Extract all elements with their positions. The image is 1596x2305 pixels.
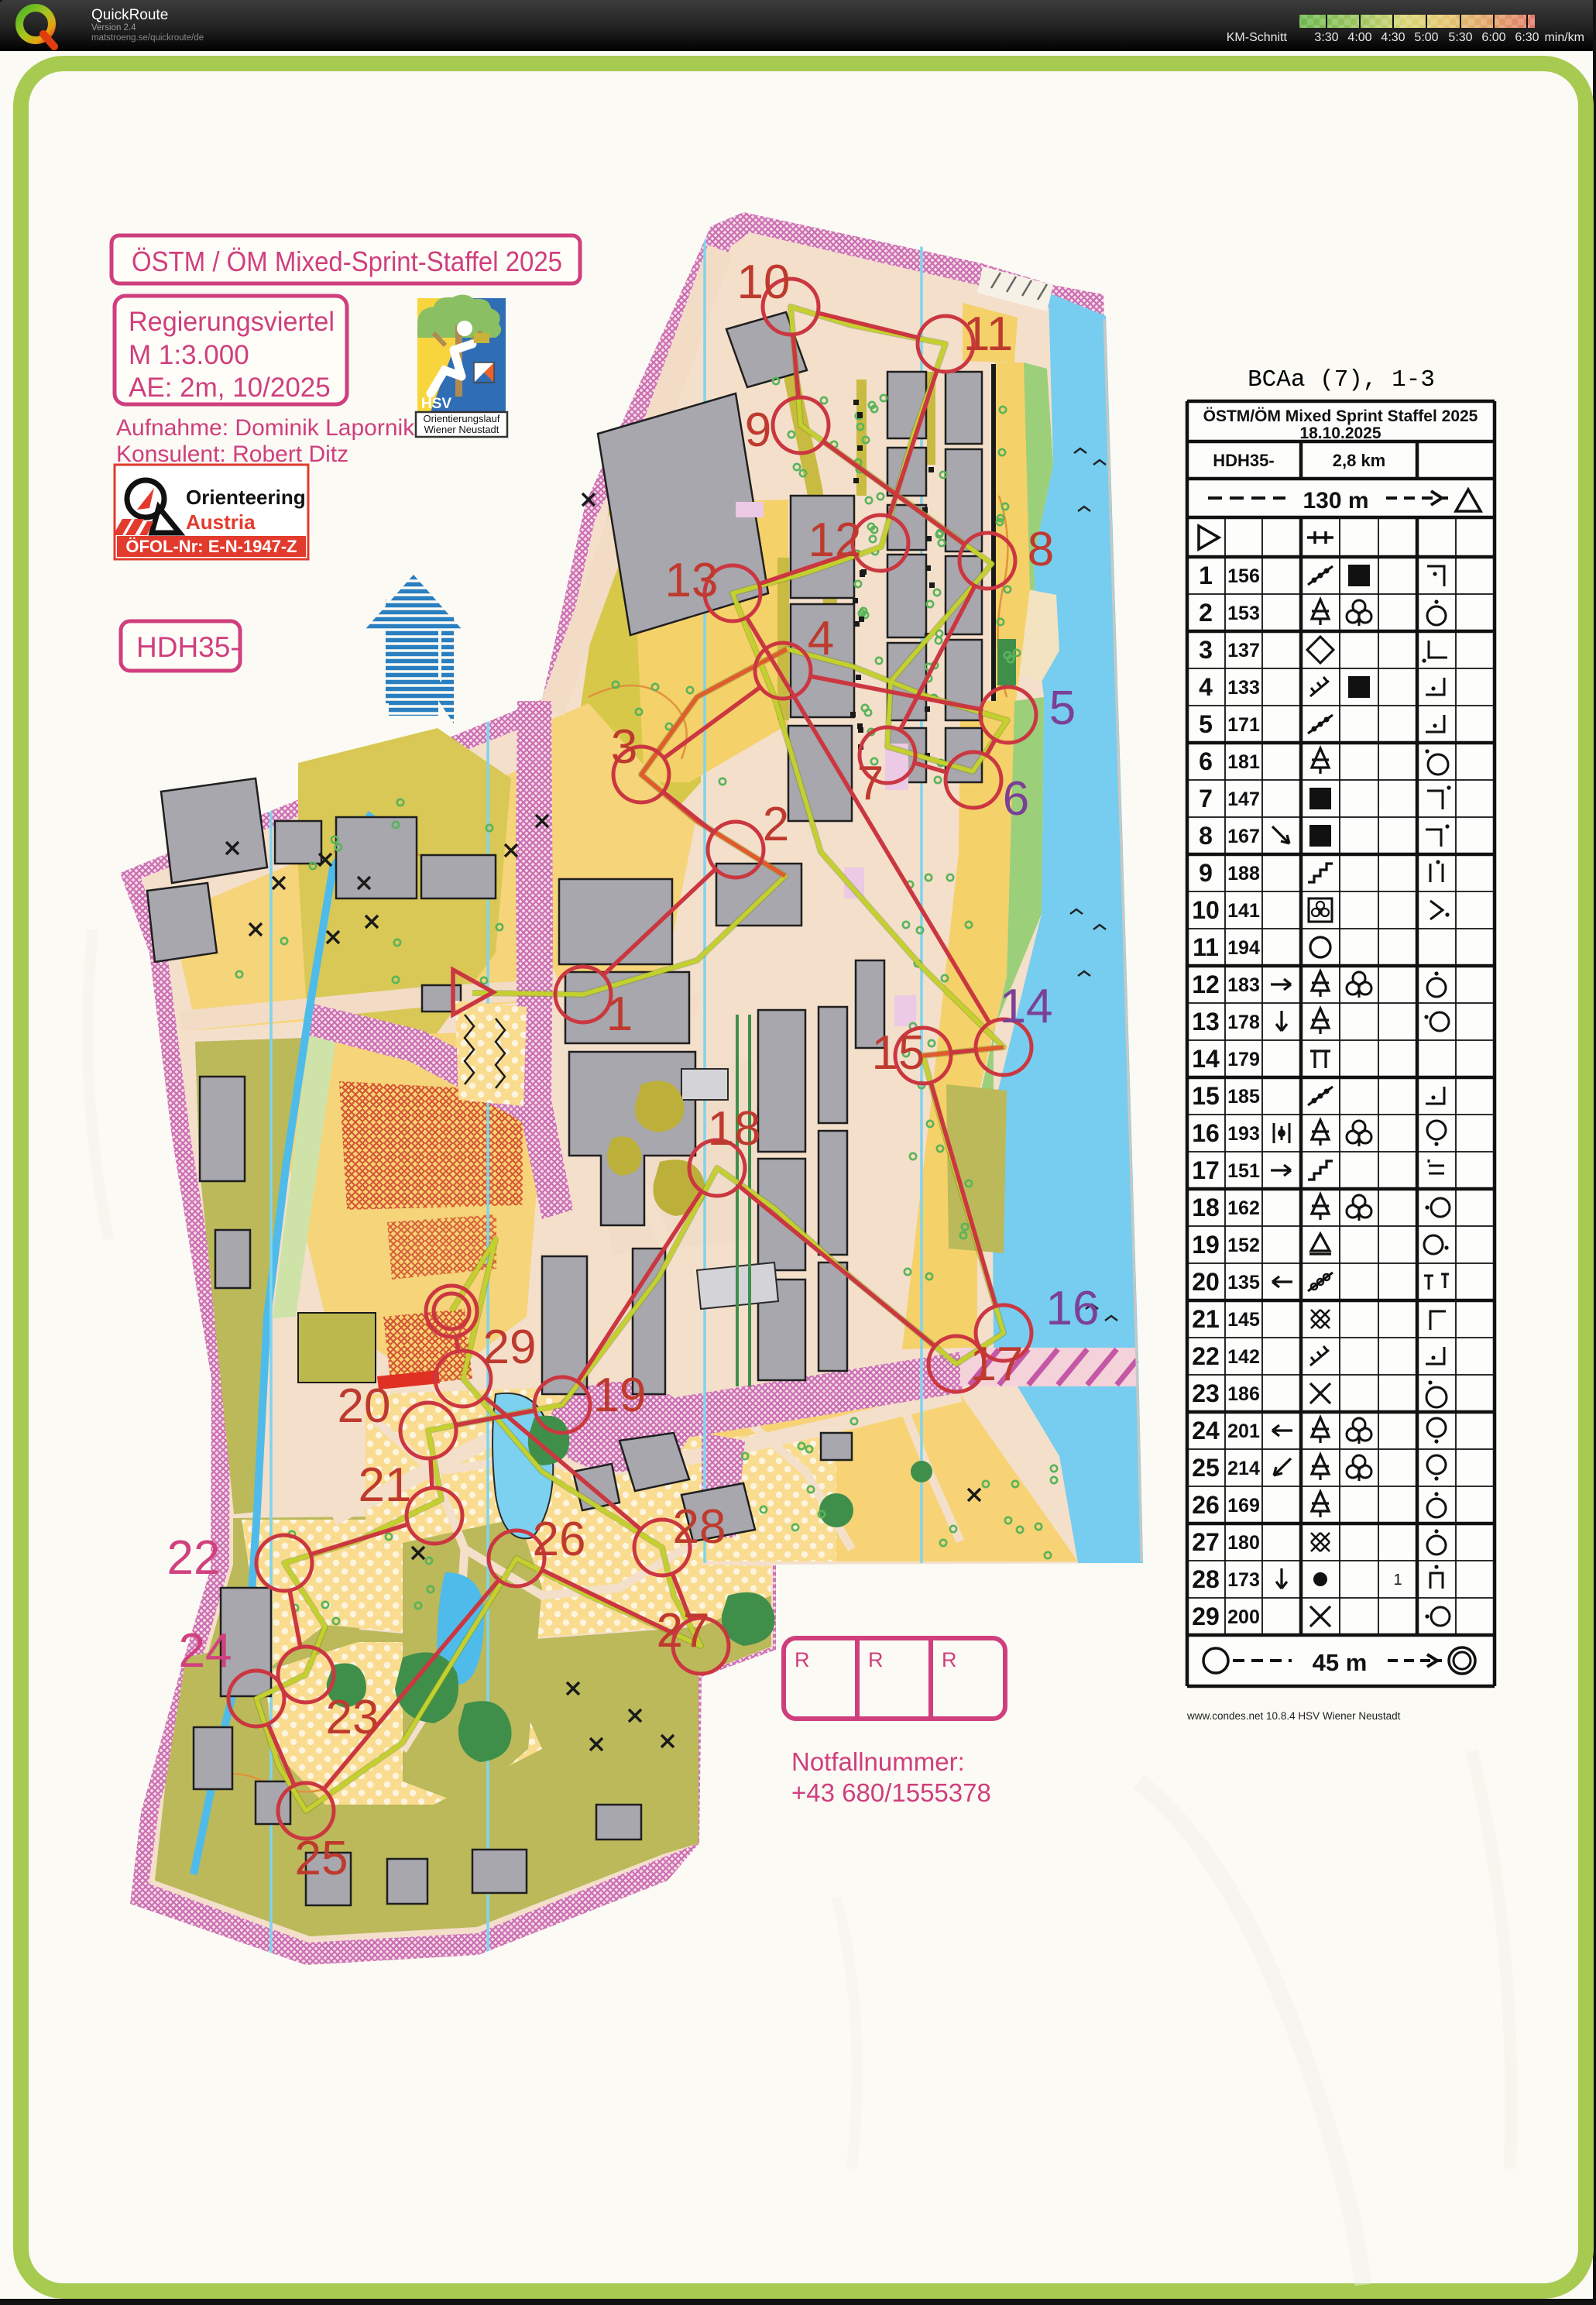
svg-text:24: 24 bbox=[1192, 1417, 1220, 1444]
svg-text:28: 28 bbox=[673, 1500, 726, 1554]
svg-text:179: 179 bbox=[1227, 1049, 1260, 1070]
svg-text:5:00: 5:00 bbox=[1414, 31, 1438, 44]
svg-text:7: 7 bbox=[857, 757, 884, 810]
svg-text:25: 25 bbox=[1192, 1454, 1220, 1482]
svg-text:3:30: 3:30 bbox=[1314, 31, 1338, 44]
svg-text:18.10.2025: 18.10.2025 bbox=[1299, 424, 1381, 442]
svg-text:2: 2 bbox=[763, 798, 789, 851]
svg-text:18: 18 bbox=[708, 1102, 761, 1156]
svg-text:200: 200 bbox=[1227, 1606, 1260, 1628]
svg-text:3: 3 bbox=[611, 720, 637, 774]
svg-text:152: 152 bbox=[1227, 1235, 1260, 1256]
svg-text:188: 188 bbox=[1227, 863, 1260, 885]
svg-text:29: 29 bbox=[1192, 1603, 1220, 1630]
svg-text:6:00: 6:00 bbox=[1481, 31, 1505, 44]
svg-text:17: 17 bbox=[970, 1338, 1024, 1391]
svg-text:5: 5 bbox=[1199, 710, 1213, 738]
svg-text:27: 27 bbox=[657, 1604, 710, 1657]
svg-text:23: 23 bbox=[1192, 1379, 1220, 1407]
svg-text:22: 22 bbox=[167, 1531, 221, 1585]
svg-text:M 1:3.000: M 1:3.000 bbox=[129, 340, 249, 370]
svg-text:156: 156 bbox=[1227, 565, 1260, 587]
svg-text:27: 27 bbox=[1192, 1528, 1220, 1556]
svg-text:169: 169 bbox=[1227, 1495, 1260, 1517]
svg-text:3: 3 bbox=[1199, 636, 1213, 664]
svg-text:4: 4 bbox=[1199, 673, 1213, 701]
svg-text:6: 6 bbox=[1003, 772, 1029, 826]
svg-text:13: 13 bbox=[1192, 1008, 1220, 1036]
svg-text:ÖSTM/ÖM Mixed Sprint Staffel 2: ÖSTM/ÖM Mixed Sprint Staffel 2025 bbox=[1203, 407, 1478, 425]
svg-text:183: 183 bbox=[1227, 974, 1260, 996]
svg-text:4:00: 4:00 bbox=[1347, 31, 1371, 44]
svg-text:ÖSTM / ÖM Mixed-Sprint-Staffel: ÖSTM / ÖM Mixed-Sprint-Staffel 2025 bbox=[132, 246, 562, 277]
svg-text:13: 13 bbox=[665, 554, 719, 607]
svg-text:25: 25 bbox=[295, 1832, 348, 1885]
svg-text:HSV: HSV bbox=[421, 396, 451, 412]
svg-text:5: 5 bbox=[1049, 682, 1076, 735]
svg-text:5:30: 5:30 bbox=[1448, 31, 1472, 44]
svg-text:7: 7 bbox=[1199, 785, 1213, 812]
svg-text:+43 680/1555378: +43 680/1555378 bbox=[791, 1778, 991, 1807]
svg-text:173: 173 bbox=[1227, 1569, 1260, 1591]
svg-text:QuickRoute: QuickRoute bbox=[91, 7, 168, 23]
svg-text:16: 16 bbox=[1046, 1282, 1100, 1335]
svg-text:185: 185 bbox=[1227, 1086, 1260, 1108]
svg-text:1: 1 bbox=[1393, 1572, 1402, 1589]
svg-text:www.condes.net 10.8.4 HSV Wien: www.condes.net 10.8.4 HSV Wiener Neustad… bbox=[1186, 1710, 1401, 1722]
svg-text:BCAa (7), 1-3: BCAa (7), 1-3 bbox=[1248, 366, 1435, 393]
svg-text:Austria: Austria bbox=[186, 510, 256, 534]
svg-text:20: 20 bbox=[338, 1379, 391, 1433]
svg-text:171: 171 bbox=[1227, 714, 1260, 736]
svg-text:24: 24 bbox=[179, 1624, 232, 1678]
svg-text:45 m: 45 m bbox=[1313, 1649, 1368, 1676]
svg-text:147: 147 bbox=[1227, 788, 1260, 810]
svg-text:min/km: min/km bbox=[1544, 31, 1584, 44]
svg-text:23: 23 bbox=[326, 1691, 379, 1744]
svg-text:ÖFOL-Nr: E-N-1947-Z: ÖFOL-Nr: E-N-1947-Z bbox=[125, 537, 297, 556]
svg-text:153: 153 bbox=[1227, 603, 1260, 624]
svg-text:19: 19 bbox=[593, 1369, 647, 1422]
svg-text:HDH35-: HDH35- bbox=[136, 631, 240, 663]
svg-text:18: 18 bbox=[1192, 1194, 1220, 1221]
svg-text:29: 29 bbox=[483, 1321, 537, 1374]
svg-text:KM-Schnitt: KM-Schnitt bbox=[1227, 31, 1288, 44]
svg-text:133: 133 bbox=[1227, 677, 1260, 699]
svg-text:186: 186 bbox=[1227, 1383, 1260, 1405]
svg-text:22: 22 bbox=[1192, 1342, 1220, 1370]
svg-text:26: 26 bbox=[1192, 1491, 1220, 1519]
svg-text:130 m: 130 m bbox=[1303, 488, 1368, 514]
svg-text:135: 135 bbox=[1227, 1272, 1260, 1293]
svg-text:1: 1 bbox=[1199, 562, 1213, 589]
svg-text:Aufnahme: Dominik Lapornik: Aufnahme: Dominik Lapornik bbox=[116, 415, 415, 441]
svg-text:145: 145 bbox=[1227, 1309, 1260, 1331]
svg-text:Wiener Neustadt: Wiener Neustadt bbox=[424, 424, 499, 435]
svg-text:4: 4 bbox=[808, 612, 834, 665]
svg-text:26: 26 bbox=[533, 1513, 586, 1566]
svg-text:Version 2.4: Version 2.4 bbox=[91, 23, 136, 33]
svg-text:Orientierungslauf: Orientierungslauf bbox=[424, 413, 500, 424]
svg-text:151: 151 bbox=[1227, 1160, 1260, 1182]
svg-text:AE: 2m, 10/2025: AE: 2m, 10/2025 bbox=[129, 373, 331, 403]
svg-text:15: 15 bbox=[872, 1026, 925, 1080]
svg-text:137: 137 bbox=[1227, 640, 1260, 661]
svg-text:12: 12 bbox=[1192, 970, 1220, 998]
svg-text:Orienteering: Orienteering bbox=[186, 486, 306, 509]
svg-text:Konsulent: Robert Ditz: Konsulent: Robert Ditz bbox=[116, 441, 348, 467]
svg-text:6: 6 bbox=[1199, 747, 1213, 775]
svg-text:9: 9 bbox=[1199, 859, 1213, 887]
svg-text:R: R bbox=[868, 1648, 884, 1671]
svg-text:Regierungsviertel: Regierungsviertel bbox=[129, 307, 335, 337]
svg-text:4:30: 4:30 bbox=[1381, 31, 1405, 44]
svg-text:14: 14 bbox=[1000, 980, 1053, 1033]
svg-text:19: 19 bbox=[1192, 1231, 1220, 1259]
svg-text:14: 14 bbox=[1192, 1045, 1220, 1073]
svg-text:R: R bbox=[795, 1648, 810, 1671]
svg-text:12: 12 bbox=[808, 514, 862, 567]
svg-text:8: 8 bbox=[1028, 523, 1054, 576]
svg-text:HDH35-: HDH35- bbox=[1213, 451, 1274, 470]
svg-text:28: 28 bbox=[1192, 1565, 1220, 1593]
svg-text:16: 16 bbox=[1192, 1119, 1220, 1147]
svg-text:181: 181 bbox=[1227, 751, 1260, 773]
svg-text:214: 214 bbox=[1227, 1458, 1260, 1479]
svg-text:21: 21 bbox=[1192, 1305, 1220, 1333]
svg-text:11: 11 bbox=[963, 307, 1013, 361]
svg-text:11: 11 bbox=[1193, 933, 1219, 961]
svg-text:141: 141 bbox=[1227, 900, 1260, 922]
svg-text:21: 21 bbox=[359, 1458, 412, 1512]
svg-text:194: 194 bbox=[1227, 937, 1260, 959]
svg-text:9: 9 bbox=[745, 404, 771, 457]
svg-text:17: 17 bbox=[1192, 1156, 1220, 1184]
svg-text:10: 10 bbox=[1192, 896, 1220, 924]
svg-text:167: 167 bbox=[1227, 826, 1260, 847]
svg-text:193: 193 bbox=[1227, 1123, 1260, 1145]
svg-text:178: 178 bbox=[1227, 1012, 1260, 1033]
svg-text:2: 2 bbox=[1199, 599, 1213, 627]
svg-text:180: 180 bbox=[1227, 1532, 1260, 1554]
svg-text:Notfallnummer:: Notfallnummer: bbox=[791, 1747, 965, 1776]
svg-text:162: 162 bbox=[1227, 1197, 1260, 1219]
svg-text:15: 15 bbox=[1192, 1082, 1220, 1110]
svg-text:2,8 km: 2,8 km bbox=[1333, 451, 1386, 470]
svg-text:142: 142 bbox=[1227, 1346, 1260, 1368]
svg-text:8: 8 bbox=[1199, 822, 1213, 850]
svg-text:matstroeng.se/quickroute/de: matstroeng.se/quickroute/de bbox=[91, 33, 204, 43]
svg-text:201: 201 bbox=[1227, 1420, 1260, 1442]
svg-text:20: 20 bbox=[1192, 1268, 1220, 1296]
svg-text:R: R bbox=[942, 1648, 957, 1671]
svg-text:6:30: 6:30 bbox=[1515, 31, 1539, 44]
svg-text:10: 10 bbox=[737, 256, 791, 309]
svg-text:1: 1 bbox=[606, 988, 633, 1041]
